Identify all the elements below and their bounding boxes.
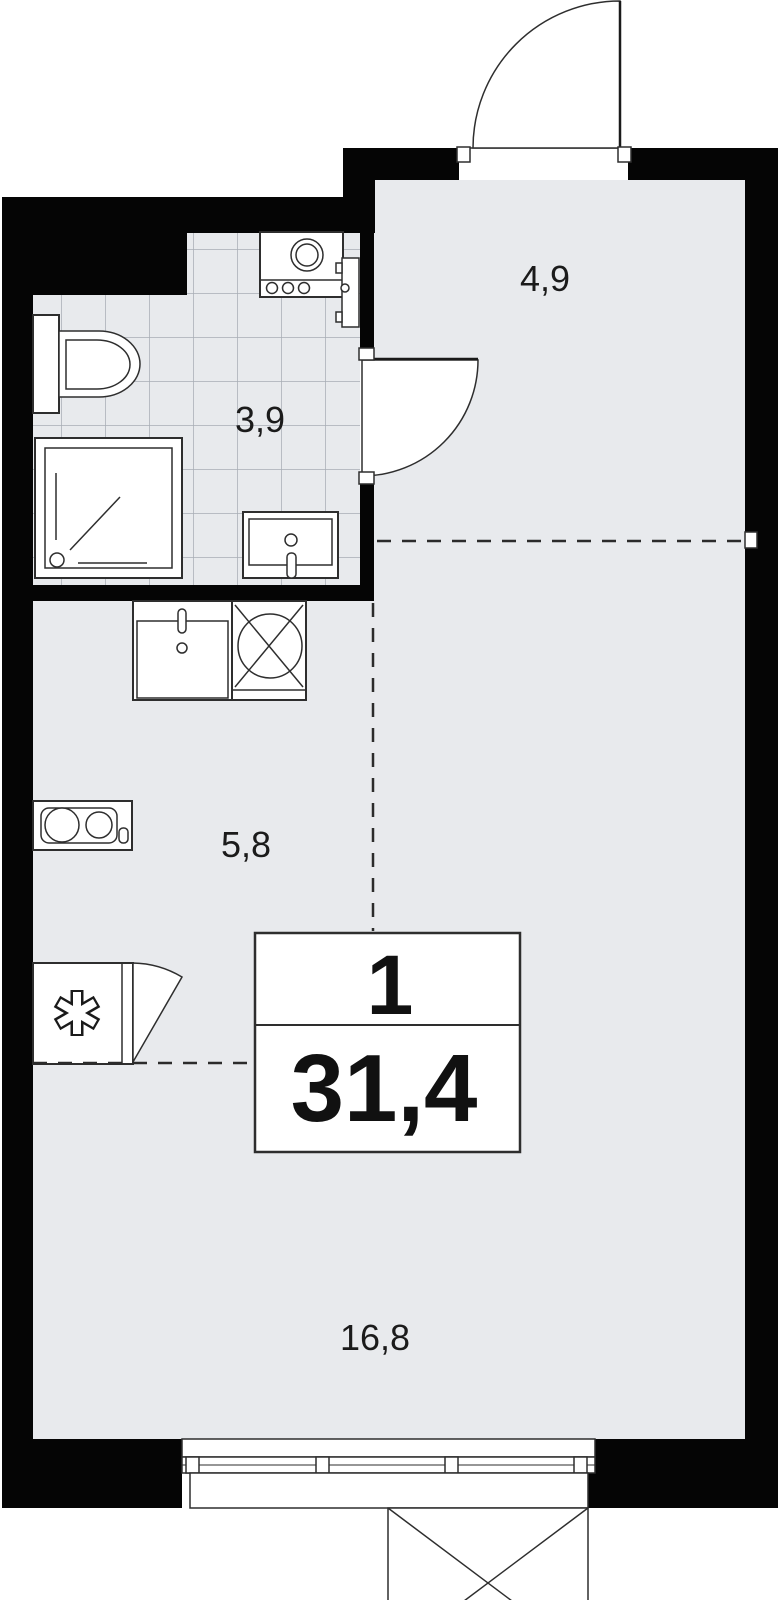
hall-area-label: 4,9 xyxy=(520,258,570,299)
floor-plan-canvas: 4,9 3,9 5,8 16,8 1 31,4 xyxy=(0,0,778,1600)
balcony-icon xyxy=(388,1508,588,1600)
window-icon xyxy=(182,1439,595,1508)
unit-badge: 1 31,4 xyxy=(255,933,520,1152)
stove-icon xyxy=(232,601,306,700)
kitchen-sink-icon xyxy=(133,601,232,700)
kitchen-area-label: 5,8 xyxy=(221,824,271,865)
shower-icon xyxy=(35,438,182,578)
floor-plan: 4,9 3,9 5,8 16,8 1 31,4 xyxy=(0,0,778,1600)
entrance-door xyxy=(457,1,631,162)
total-area: 31,4 xyxy=(291,1035,478,1142)
wall-notch xyxy=(745,532,757,548)
bathroom-area-label: 3,9 xyxy=(235,399,285,440)
entrance-door-swing xyxy=(473,1,620,148)
room-count: 1 xyxy=(367,938,414,1032)
bathroom-sink-icon xyxy=(243,512,338,578)
living-area-label: 16,8 xyxy=(340,1317,410,1358)
cooktop-icon xyxy=(33,801,132,850)
washing-machine-icon xyxy=(260,232,343,297)
